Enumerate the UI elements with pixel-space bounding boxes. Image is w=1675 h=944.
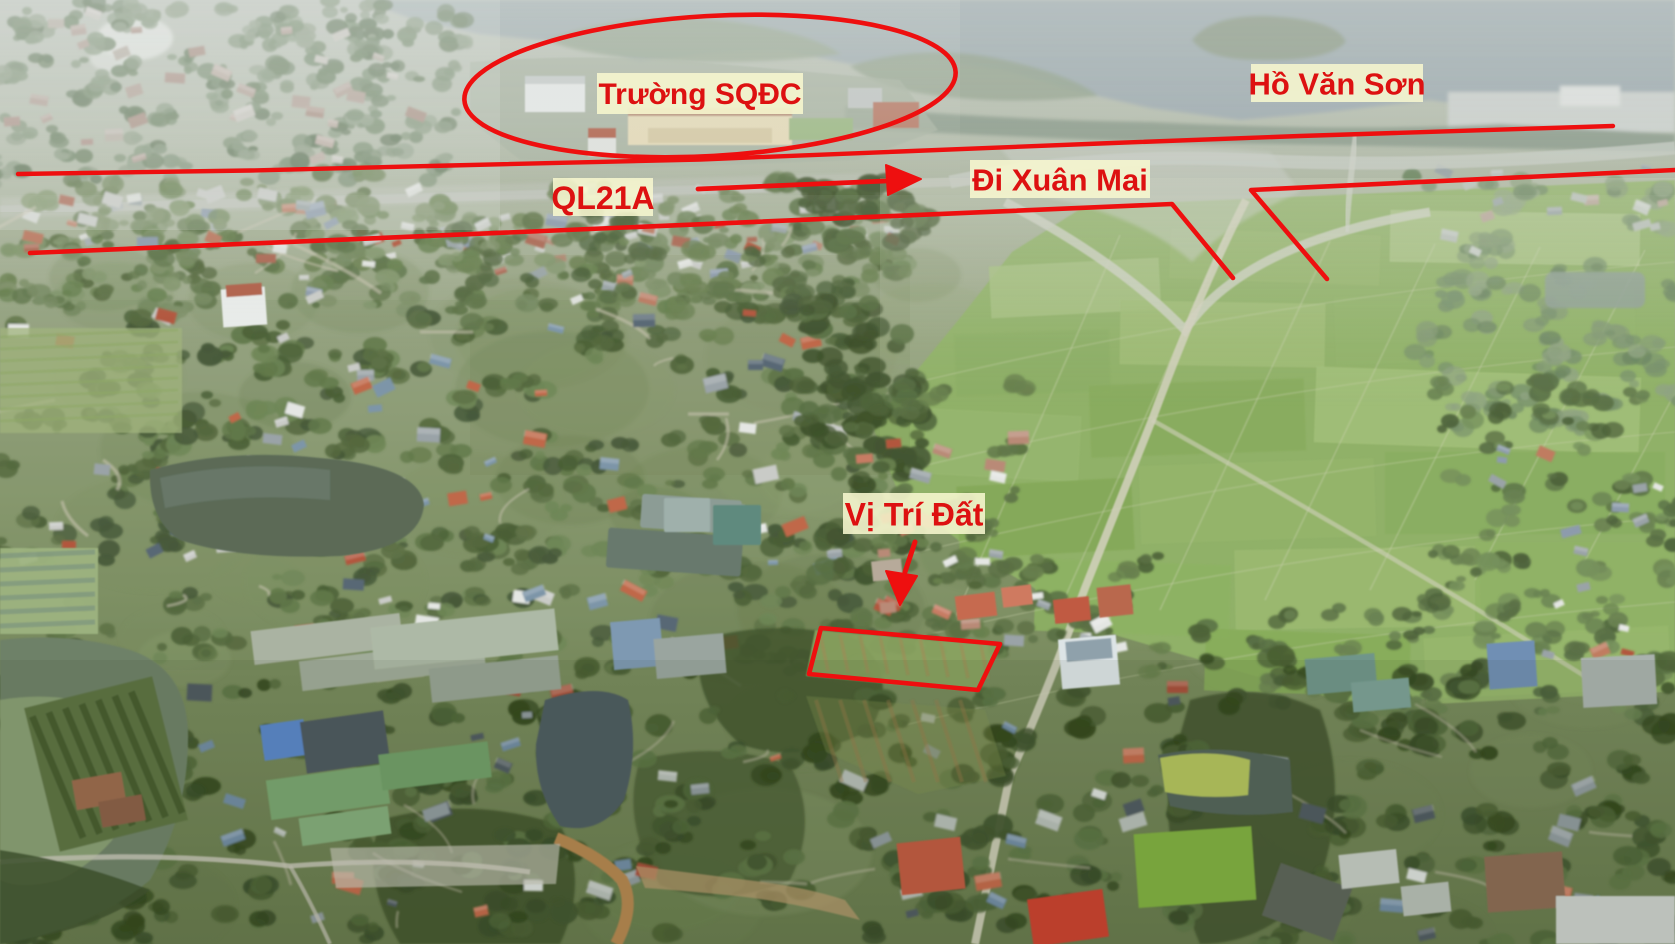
- svg-text:Đi Xuân Mai: Đi Xuân Mai: [972, 163, 1148, 198]
- svg-text:QL21A: QL21A: [551, 180, 654, 216]
- svg-text:Trường SQĐC: Trường SQĐC: [598, 78, 801, 111]
- svg-text:Hồ Văn Sơn: Hồ Văn Sơn: [1248, 67, 1425, 102]
- svg-text:Vị Trí Đất: Vị Trí Đất: [845, 497, 984, 533]
